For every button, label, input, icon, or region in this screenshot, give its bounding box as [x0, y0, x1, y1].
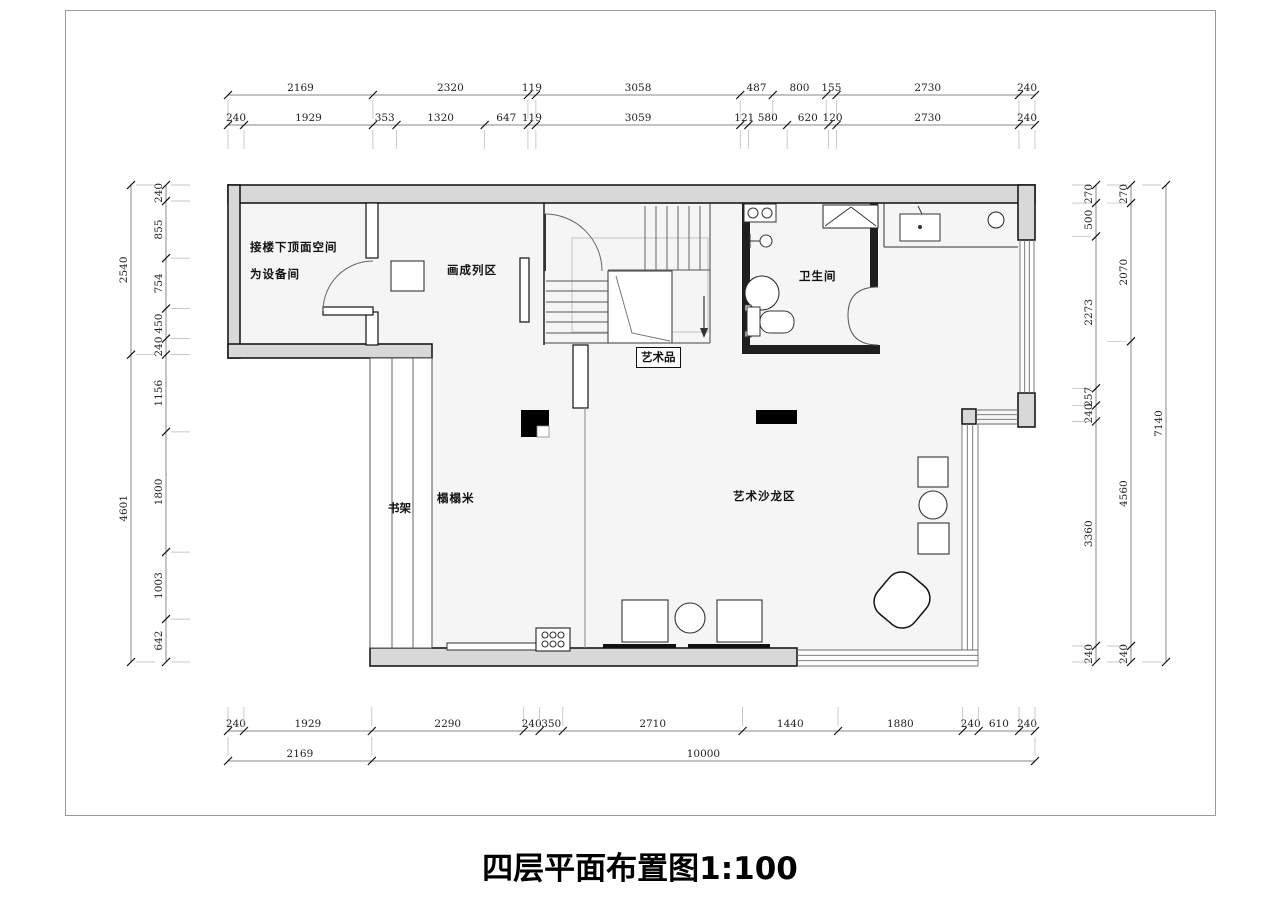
- svg-text:754: 754: [153, 273, 165, 293]
- svg-text:240: 240: [1118, 644, 1130, 664]
- label-bathroom: 卫生间: [799, 268, 837, 284]
- label-salon: 艺术沙龙区: [733, 488, 796, 504]
- label-gallery: 画成列区: [447, 262, 497, 278]
- label-equipment-room-line1: 接楼下顶面空间: [250, 239, 338, 255]
- svg-text:350: 350: [541, 718, 561, 730]
- svg-text:10000: 10000: [687, 748, 720, 760]
- svg-text:1003: 1003: [153, 572, 165, 599]
- low-board: [447, 643, 536, 650]
- svg-text:487: 487: [746, 82, 766, 94]
- svg-text:1800: 1800: [153, 479, 165, 506]
- svg-text:240: 240: [961, 718, 981, 730]
- svg-text:2730: 2730: [914, 82, 941, 94]
- svg-text:240: 240: [226, 112, 246, 124]
- svg-text:240: 240: [522, 718, 542, 730]
- svg-text:1320: 1320: [427, 112, 454, 124]
- tea-table: [536, 628, 570, 651]
- floor-plan-sheet: 2169232011930584878001552730240240192935…: [0, 0, 1280, 899]
- svg-text:240: 240: [1083, 644, 1095, 664]
- svg-text:1929: 1929: [295, 718, 322, 730]
- svg-text:4560: 4560: [1118, 480, 1130, 507]
- label-tatami: 榻榻米: [437, 490, 475, 506]
- label-bookshelf: 书架: [388, 500, 411, 516]
- svg-text:3360: 3360: [1083, 520, 1095, 547]
- gallery-cabinet: [391, 261, 424, 291]
- svg-text:3059: 3059: [625, 112, 652, 124]
- svg-text:240: 240: [1083, 403, 1095, 423]
- label-art-piece: 艺术品: [636, 347, 681, 368]
- svg-text:1880: 1880: [887, 718, 914, 730]
- svg-text:500: 500: [1083, 210, 1095, 230]
- svg-text:2070: 2070: [1118, 259, 1130, 286]
- svg-text:610: 610: [989, 718, 1009, 730]
- svg-text:3058: 3058: [625, 82, 652, 94]
- svg-text:2540: 2540: [118, 256, 130, 283]
- svg-text:7140: 7140: [1153, 410, 1165, 437]
- drawing-title: 四层平面布置图1:100: [0, 843, 1280, 888]
- svg-text:240: 240: [153, 183, 165, 203]
- svg-text:647: 647: [496, 112, 516, 124]
- svg-text:450: 450: [153, 314, 165, 334]
- label-equipment-room-line2: 为设备间: [250, 266, 300, 282]
- svg-text:2169: 2169: [287, 82, 314, 94]
- svg-text:1156: 1156: [153, 380, 165, 407]
- svg-text:800: 800: [789, 82, 809, 94]
- window-seats: [918, 457, 949, 554]
- svg-text:240: 240: [1017, 82, 1037, 94]
- svg-text:620: 620: [798, 112, 818, 124]
- svg-text:240: 240: [1017, 718, 1037, 730]
- floor-plan-drawing: 2169232011930584878001552730240240192935…: [0, 0, 1280, 899]
- svg-text:240: 240: [153, 337, 165, 357]
- svg-text:2710: 2710: [639, 718, 666, 730]
- svg-text:240: 240: [226, 718, 246, 730]
- svg-text:2320: 2320: [437, 82, 464, 94]
- svg-text:2273: 2273: [1083, 299, 1095, 326]
- svg-text:240: 240: [1017, 112, 1037, 124]
- svg-text:270: 270: [1083, 184, 1095, 204]
- svg-text:1929: 1929: [295, 112, 322, 124]
- svg-text:2290: 2290: [434, 718, 461, 730]
- svg-text:270: 270: [1118, 184, 1130, 204]
- svg-text:642: 642: [153, 631, 165, 651]
- svg-text:855: 855: [153, 220, 165, 240]
- svg-text:1440: 1440: [777, 718, 804, 730]
- svg-text:155: 155: [821, 82, 841, 94]
- svg-text:2730: 2730: [914, 112, 941, 124]
- svg-text:353: 353: [375, 112, 395, 124]
- svg-text:4601: 4601: [118, 495, 130, 522]
- svg-text:580: 580: [758, 112, 778, 124]
- svg-text:2169: 2169: [287, 748, 314, 760]
